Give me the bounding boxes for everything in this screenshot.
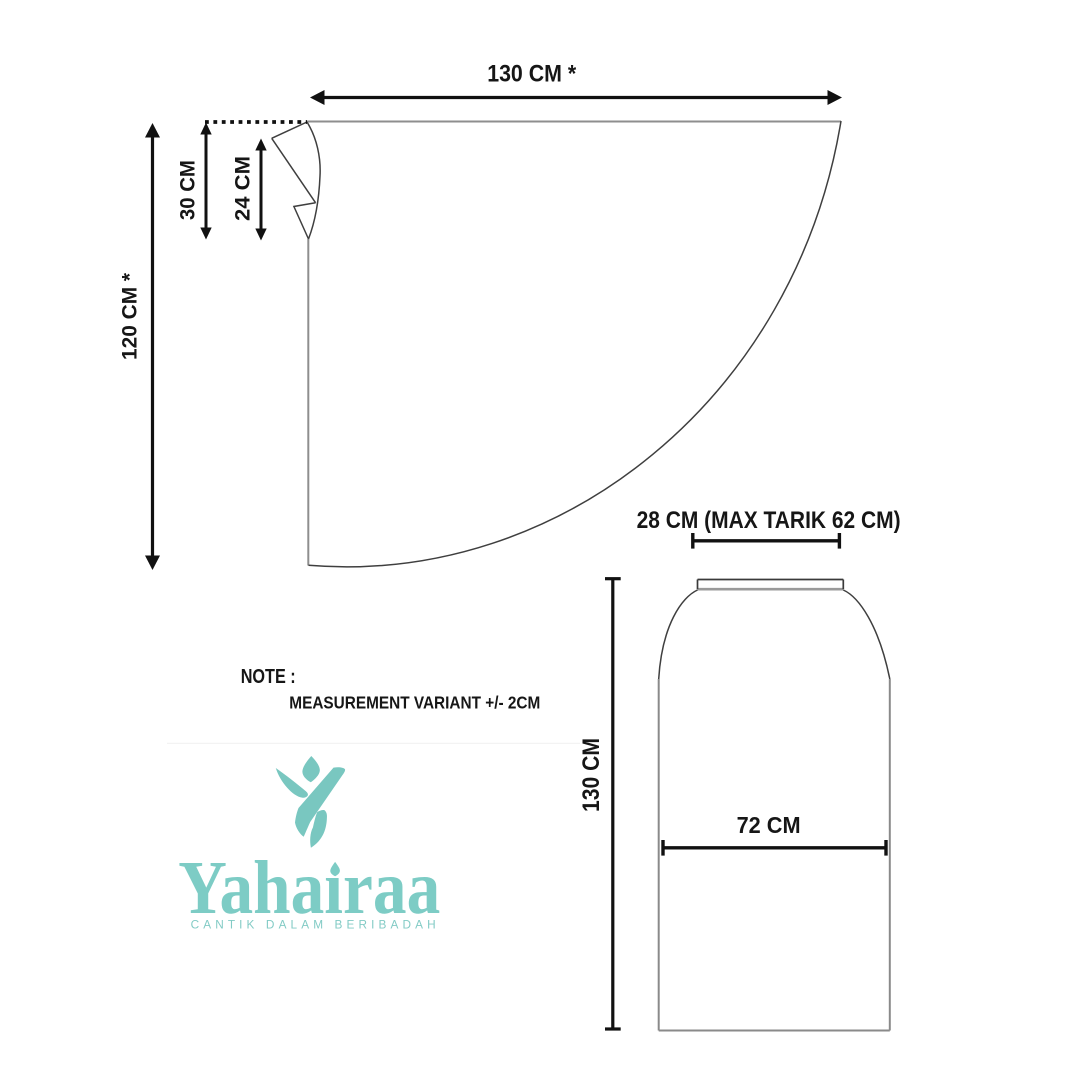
svg-text:130 CM: 130 CM: [578, 738, 605, 812]
svg-text:130 CM *: 130 CM *: [487, 60, 577, 87]
svg-text:24 CM: 24 CM: [230, 156, 254, 221]
svg-text:72 CM: 72 CM: [737, 812, 801, 838]
svg-text:NOTE :: NOTE :: [241, 665, 296, 688]
svg-text:28 CM (MAX TARIK 62 CM): 28 CM (MAX TARIK 62 CM): [637, 507, 901, 534]
svg-text:MEASUREMENT VARIANT +/- 2CM: MEASUREMENT VARIANT +/- 2CM: [289, 692, 540, 712]
svg-text:CANTIK DALAM BERIBADAH: CANTIK DALAM BERIBADAH: [191, 918, 441, 932]
svg-text:120 CM *: 120 CM *: [118, 272, 142, 360]
svg-text:30 CM: 30 CM: [175, 160, 199, 220]
